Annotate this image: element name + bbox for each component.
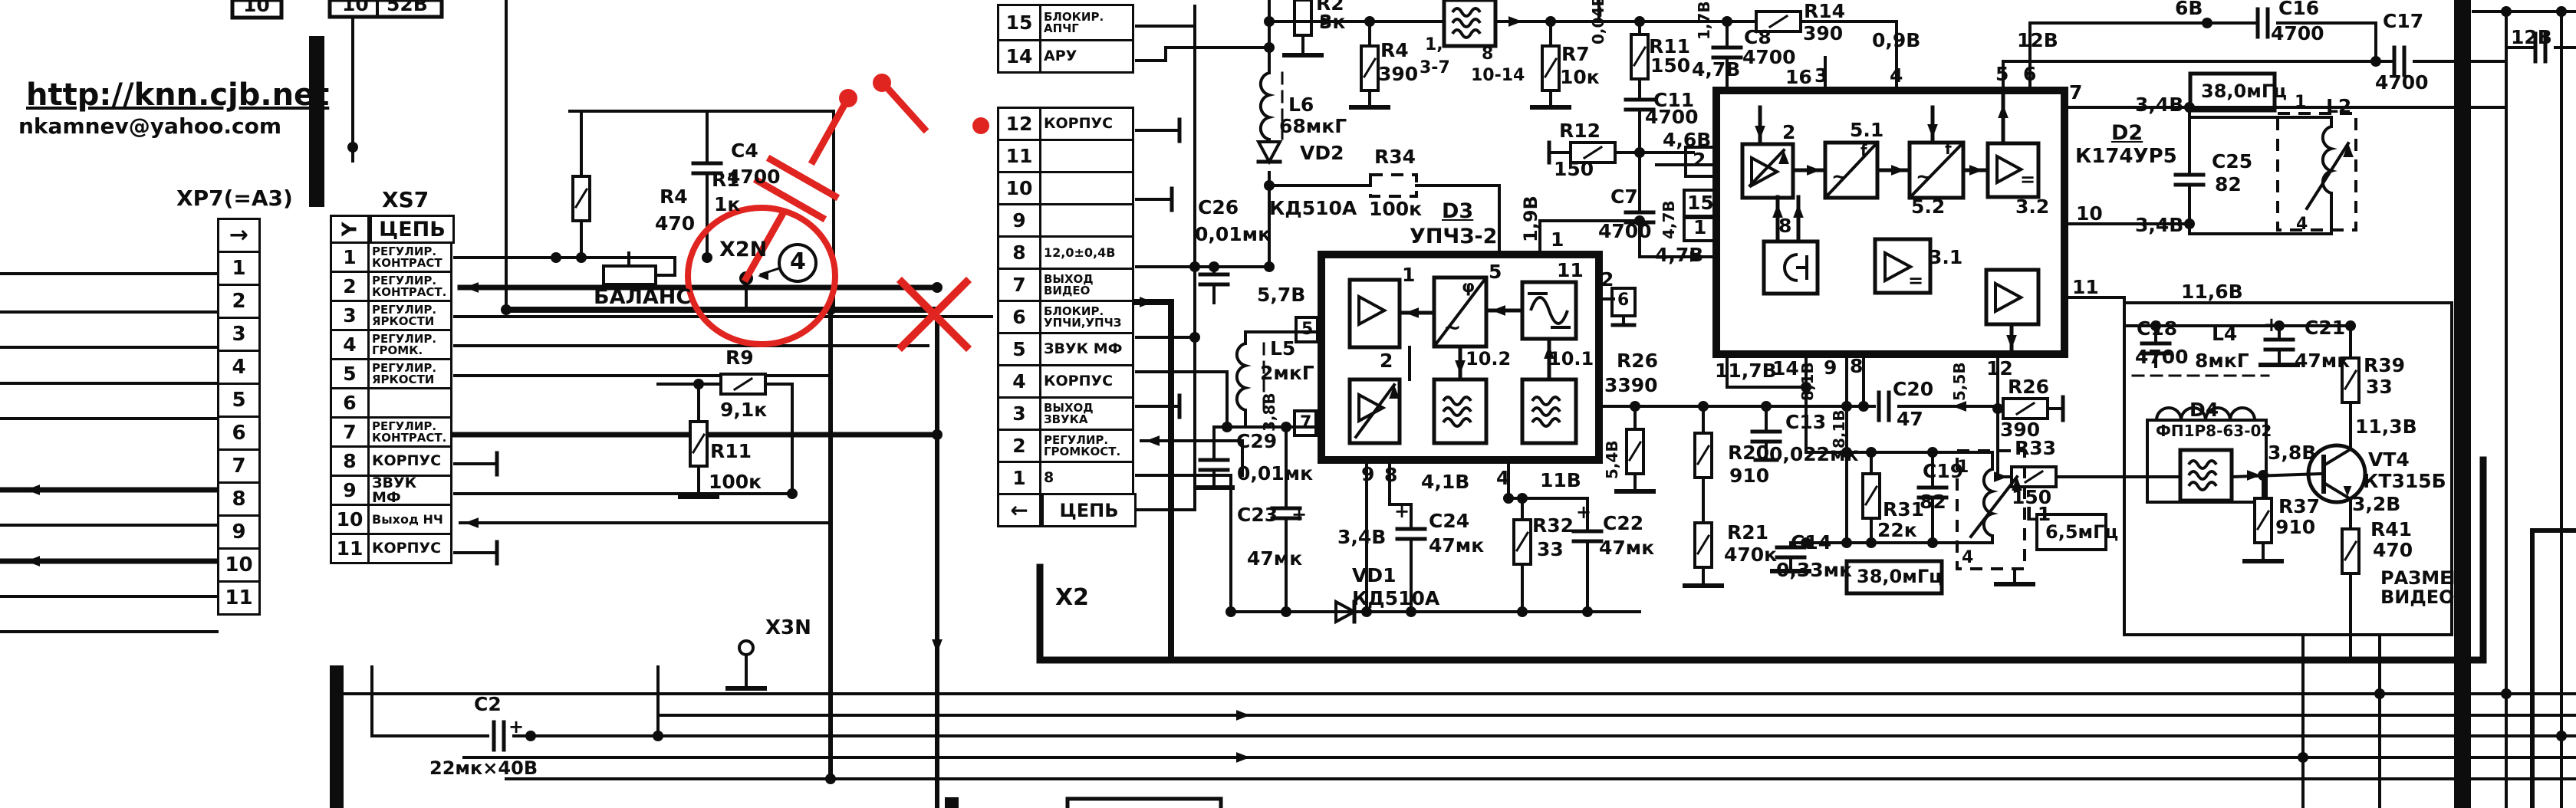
connector-xs7: YЦЕПЬ1РЕГУЛИР. КОНТРАСТ2РЕГУЛИР. КОНТРАС… <box>330 217 455 564</box>
label-components-d2-value-109: К174УР5 <box>2075 146 2177 167</box>
label-components-r4b-ref-24: R4 <box>1380 41 1409 61</box>
label-components-l4-value-93: 8мкГ <box>2195 351 2249 371</box>
label-components-r21-ref-54: R21 <box>1727 523 1768 543</box>
xs7-pin-8: 8 <box>330 445 370 477</box>
label-components-r33-value-72: 150 <box>2012 488 2051 507</box>
label-components-r9-value-17: 9,1к <box>720 400 767 420</box>
label-ics-d3-pins-p5-114: 5 <box>1301 321 1313 339</box>
xp7-pin-2: 2 <box>217 284 261 319</box>
x2-row-3: 3ВЫХОД ЗВУКА <box>997 399 1137 431</box>
label-ics-fss-pins_left_b-111: 3-7 <box>1420 60 1450 77</box>
x2-row-8: 812,0±0,4В <box>997 238 1137 270</box>
label-components-r33-ref-71: R33 <box>2015 438 2056 458</box>
label-meta-email-1: nkamnev@yahoo.com <box>18 115 281 137</box>
label-frequencies-f38_top-180: 38,0мГц <box>2201 82 2287 101</box>
label-components-r20-value-53: 910 <box>1729 466 1769 486</box>
label-ics-d2-pins-r10-137: 10 <box>2076 204 2103 224</box>
x2-label-8: 12,0±0,4В <box>1039 235 1134 270</box>
xp7-pin-4: 4 <box>217 350 261 385</box>
label-ics-d3-pins-p4-121: 4 <box>1496 468 1509 488</box>
label-components-r11a-value-19: 100к <box>709 472 762 492</box>
xs7-row-6: 6 <box>330 389 455 419</box>
label-ics-l2_pins-p1-151: 1 <box>2295 94 2306 112</box>
label-connectors-xp7-title-2: XP7(=A3) <box>176 187 293 209</box>
xp7-pin-10: 10 <box>217 547 261 583</box>
label-ics-d2-blocks-b51-144: 5.1 <box>1850 120 1883 140</box>
xs7-row-4: 4РЕГУЛИР. ГРОМК. <box>330 331 455 360</box>
label-components-r1-value-11: 1к <box>714 195 740 215</box>
label-ics-fss-pins_left_a-110: 1, <box>1425 37 1443 54</box>
x2-pin-8: 8 <box>997 235 1041 270</box>
x2-label-10 <box>1039 171 1134 205</box>
label-voltages-v11-168: 11В <box>1540 471 1581 491</box>
label-annotations-callout-8: 4 <box>790 250 806 274</box>
label-glyphs-eq-192: = <box>2020 170 2035 189</box>
label-components-c20-ref-64: C20 <box>1893 379 1933 399</box>
x2-pin-3: 3 <box>997 396 1041 431</box>
label-components-r41-ref-104: R41 <box>2370 520 2412 540</box>
x2-row-6: 6БЛОКИР. УПЧИ,УПЧЗ <box>997 302 1137 334</box>
xs7-row-2: 2РЕГУЛИР. КОНТРАСТ. <box>330 273 455 302</box>
label-annotations-x3n-7: X3N <box>765 618 811 639</box>
label-ics-d2-pins-t5-131: 5 <box>1995 64 2008 84</box>
label-frequencies-f38_bottom-181: 38,0мГц <box>1857 567 1943 586</box>
label-voltages-v17-155: 1,7В <box>1696 1 1712 40</box>
x2-label-1: 8 <box>1039 461 1134 495</box>
label-voltages-v47b-158: 4,7В <box>1661 200 1677 239</box>
label-components-r26a-ref-67: R26 <box>1617 351 1658 371</box>
xs7-row-1: 1РЕГУЛИР. КОНТРАСТ <box>330 244 455 273</box>
label-glyphs-tilde-191: ~ <box>1916 167 1933 188</box>
xs7-label-10: Выход НЧ <box>367 504 452 535</box>
label-glyphs-plus-196: + <box>1576 503 1591 522</box>
label-ics-d3-blocks-b101-127: 10.1 <box>1548 350 1594 369</box>
label-components-c2-ref-20: C2 <box>474 695 502 714</box>
label-voltages-v38b-166: 3,8В <box>2268 443 2316 463</box>
label-components-d3-value-107: УПЧЗ-2 <box>1410 226 1497 248</box>
label-components-r32-ref-48: R32 <box>1532 516 1574 536</box>
xs7-row-5: 5РЕГУЛИР. ЯРКОСТИ <box>330 360 455 389</box>
xs7-pin-3: 3 <box>330 300 370 331</box>
label-ics-d2-pins-b9-140: 9 <box>1824 358 1837 378</box>
label-components-r20-ref-52: R20 <box>1728 443 1769 463</box>
label-components-r32-value-49: 33 <box>1537 540 1564 560</box>
xs7-row-11: 11КОРПУС <box>330 535 455 564</box>
label-components-c23-ref-42: C23 <box>1237 505 1278 525</box>
label-components-d3-ref-106: D3 <box>1442 201 1473 222</box>
label-ics-d2-pins-l1-135: 1 <box>1693 218 1706 238</box>
label-glyphs-plus-197: + <box>2263 315 2280 336</box>
label-ics-d2-pins-t4-130: 4 <box>1890 66 1903 86</box>
label-components-c22-ref-50: C22 <box>1603 514 1643 534</box>
label-voltages-v117-176: 11,7В <box>1715 361 1777 381</box>
label-components-r4a-ref-14: R4 <box>660 187 688 207</box>
label-components-r26a-value-68: 3390 <box>1604 376 1658 396</box>
label-ics-d3-pins-p2-117: 2 <box>1601 270 1614 290</box>
x2-row-14: 14АРУ <box>997 41 1137 74</box>
xs7-label-3: РЕГУЛИР. ЯРКОСТИ <box>367 300 452 331</box>
xp7-row: 8 <box>217 484 261 517</box>
label-voltages-v54-172: 5,4В <box>1604 440 1620 479</box>
label-components-c16-ref-83: C16 <box>2278 0 2319 18</box>
label-components-c16-value-84: 4700 <box>2271 24 2324 44</box>
xp7-row: 4 <box>217 352 261 385</box>
label-components-r39-value-97: 33 <box>2366 377 2393 397</box>
label-voltages-v55-173: 5,5В <box>1952 362 1968 401</box>
xs7-pin-2: 2 <box>330 271 370 302</box>
label-ics-d2-pins-l2-133: 2 <box>1693 150 1706 170</box>
label-ics-d2-blocks-b8-147: 8 <box>1778 216 1791 236</box>
label-ics-d3-blocks-b11-124: 11 <box>1557 261 1584 281</box>
label-ics-d3-pins-p9-119: 9 <box>1361 465 1374 484</box>
label-components-c18-value-91: 4700 <box>2135 347 2189 367</box>
x2-row-1: 18 <box>997 463 1137 495</box>
label-ics-l1_pins-p1-149: 1 <box>1957 459 1969 477</box>
label-components-r12-value-29: 150 <box>1554 159 1594 179</box>
x2-label-9 <box>1039 203 1134 238</box>
label-glyphs-tilde-189: ~ <box>1831 167 1848 188</box>
label-ics-d3-pins-p7-115: 7 <box>1300 415 1311 432</box>
label-components-c20-value-65: 47 <box>1897 409 1923 429</box>
x2-footer-label: ЦЕПЬ <box>1041 493 1137 527</box>
x2-label-7: ВЫХОД ВИДЕО <box>1039 268 1134 302</box>
label-components-c17-value-86: 4700 <box>2375 73 2429 93</box>
x2-row-10: 10 <box>997 173 1137 205</box>
label-components-c14-value-59: 0,33мк <box>1776 560 1852 580</box>
x2-label-5: ЗВУК МФ <box>1039 332 1134 366</box>
xp7-header-arrow: → <box>217 218 261 253</box>
label-voltages-v34c-171: 3,4В <box>2135 215 2183 235</box>
xp7-row: 7 <box>217 451 261 484</box>
x2-pin-6: 6 <box>997 300 1041 334</box>
label-components-r37-ref-102: R37 <box>2278 497 2320 517</box>
x2-pin-1: 1 <box>997 461 1041 495</box>
label-ics-d3-pins-p8-120: 8 <box>1384 465 1397 485</box>
label-voltages-v47a-157: 4,7В <box>1692 60 1740 80</box>
label-components-c21-value-95: 47мк <box>2295 351 2350 371</box>
x2-row-4: 4КОРПУС <box>997 366 1137 399</box>
label-glyphs-eq-193: = <box>1908 271 1923 291</box>
label-components-r7-ref-26: R7 <box>1561 44 1590 64</box>
label-components-c29-value-41: 0,01мк <box>1237 464 1313 484</box>
label-ics-d3-pins-p1-116: 1 <box>1551 230 1564 250</box>
label-connectors-fragments-box1_pin-183: 10 <box>243 0 270 15</box>
x2-label-3: ВЫХОД ЗВУКА <box>1039 396 1134 431</box>
label-voltages-v38a-165: 3,8В <box>1262 393 1278 432</box>
x2-pin-11: 11 <box>997 139 1041 173</box>
label-glyphs-plus-198: + <box>508 718 524 737</box>
label-connectors-fragments-box2_pin-184: 10 <box>342 0 369 15</box>
label-components-c24-value-47: 47мк <box>1429 536 1484 556</box>
xp7-row: 5 <box>217 385 261 418</box>
label-annotations-razmer-9: РАЗМЕР ВИДЕО <box>2380 569 2466 607</box>
label-components-c11-value-78: 4700 <box>1645 107 1699 127</box>
x2-row-11: 11 <box>997 141 1137 173</box>
xs7-row-9: 9ЗВУК МФ <box>330 477 455 506</box>
label-components-r26b-ref-69: R26 <box>2008 377 2049 397</box>
label-voltages-v116-177: 11,6В <box>2181 282 2243 302</box>
xs7-pin-5: 5 <box>330 358 370 389</box>
label-components-r31-value-61: 22к <box>1877 521 1917 540</box>
xs7-fork-symbol: Y <box>340 222 360 237</box>
label-components-c18-ref-90: C18 <box>2137 319 2177 339</box>
x2-row-9: 9 <box>997 205 1137 238</box>
label-ics-d2-pins-r11-138: 11 <box>2072 278 2099 297</box>
label-ics-d3-blocks-b5-123: 5 <box>1489 262 1502 282</box>
label-ics-d2-pins-t3-129: 3 <box>1814 66 1828 86</box>
x2-row-12: 12КОРПУС <box>997 109 1137 141</box>
label-components-l2-ref-89: L2 <box>2326 97 2351 117</box>
label-components-r9-ref-16: R9 <box>725 348 754 368</box>
label-voltages-v81a-174: 8,1В <box>1800 362 1816 401</box>
xp7-pin-3: 3 <box>217 317 261 352</box>
xp7-row: 3 <box>217 319 261 352</box>
xp7-pin-7: 7 <box>217 448 261 484</box>
x2-gap <box>997 74 1137 109</box>
label-components-c23-value-43: 47мк <box>1247 549 1302 569</box>
label-components-r11a-ref-18: R11 <box>710 442 752 461</box>
label-components-d4-value-99: ФП1Р8-63-02 <box>2156 423 2272 439</box>
label-ics-d2-blocks-b52-145: 5.2 <box>1911 197 1945 217</box>
xs7-pin-1: 1 <box>330 241 370 273</box>
label-components-r12-ref-28: R12 <box>1559 121 1601 141</box>
label-components-d4-ref-98: D4 <box>2189 400 2219 420</box>
label-components-r39-ref-96: R39 <box>2364 356 2405 376</box>
x2-row-2: 2РЕГУЛИР. ГРОМКОСТ. <box>997 431 1137 463</box>
x2-pin-14: 14 <box>997 39 1041 74</box>
label-annotations-balance-5: БАЛАНС <box>594 287 691 308</box>
xs7-pin-6: 6 <box>330 387 370 419</box>
label-components-d2-ref-108: D2 <box>2111 123 2143 144</box>
label-ics-d2-pins-r7-136: 7 <box>2069 83 2082 103</box>
label-meta-url-0: http://knn.cjb.net <box>26 80 329 112</box>
xs7-header-label: ЦЕПЬ <box>370 215 455 244</box>
label-components-c24-ref-46: C24 <box>1429 511 1469 531</box>
x2-pin-2: 2 <box>997 429 1041 463</box>
label-components-vt4-ref-100: VT4 <box>2368 450 2410 470</box>
label-ics-d2-pins-l15-134: 15 <box>1687 193 1714 213</box>
label-voltages-v41-167: 4,1В <box>1421 472 1469 492</box>
label-components-r4a-value-15: 470 <box>655 214 695 234</box>
label-ics-d2-blocks-b2-143: 2 <box>1782 123 1795 143</box>
x2-pin-10: 10 <box>997 171 1041 205</box>
label-voltages-v12a-161: 12В <box>2017 31 2058 51</box>
label-ics-d3-blocks-b102-126: 10.2 <box>1466 350 1511 369</box>
label-components-r34-ref-30: R34 <box>1374 147 1416 167</box>
label-components-r31-ref-60: R31 <box>1883 500 1924 520</box>
label-voltages-v12b-162: 12В <box>2511 28 2552 48</box>
label-glyphs-plus-194: + <box>1291 505 1307 524</box>
label-components-r41-value-105: 470 <box>2373 540 2413 560</box>
xs7-label-4: РЕГУЛИР. ГРОМК. <box>367 329 452 360</box>
xs7-label-8: КОРПУС <box>367 445 452 477</box>
label-components-c8-ref-81: C8 <box>1744 28 1772 48</box>
label-components-r37-value-103: 910 <box>2275 517 2315 537</box>
label-voltages-v32-179: 3,2В <box>2352 494 2400 514</box>
xs7-label-2: РЕГУЛИР. КОНТРАСТ. <box>367 271 452 302</box>
label-connectors-x2-title-4: X2 <box>1055 586 1089 609</box>
label-glyphs-tilde-187: ~ <box>1443 316 1461 338</box>
label-ics-d3-blocks-b1-122: 1 <box>1402 265 1415 285</box>
label-components-r14-ref-79: R14 <box>1804 2 1845 21</box>
label-components-c13-ref-56: C13 <box>1785 412 1826 432</box>
label-ics-d2-blocks-b31-148: 3.1 <box>1929 248 1962 268</box>
xs7-label-7: РЕГУЛИР. КОНТРАСТ. <box>367 416 452 448</box>
connector-xp7: →1234567891011 <box>217 220 261 616</box>
label-components-c25-ref-87: C25 <box>2212 152 2252 172</box>
label-ics-d2-pins-t16-128: 16 <box>1785 67 1812 87</box>
label-components-c4-value-13: 4700 <box>727 167 781 187</box>
xp7-pin-11: 11 <box>217 580 261 616</box>
label-voltages-v46-156: 4,6В <box>1663 130 1711 150</box>
x2-pin-4: 4 <box>997 364 1041 399</box>
label-components-c7-ref-73: C7 <box>1610 187 1638 207</box>
x2-footer-arrow: ← <box>997 493 1041 527</box>
label-components-c4-ref-12: C4 <box>731 141 758 161</box>
label-glyphs-f-190: f <box>1945 141 1952 157</box>
label-connectors-xs7-title-3: XS7 <box>382 189 429 211</box>
xp7-row: 9 <box>217 517 261 550</box>
label-components-vd2-value-35: КД510А <box>1269 199 1357 218</box>
label-components-r4b-value-25: 390 <box>1378 64 1418 84</box>
label-voltages-v19-163: 1,9В <box>1522 195 1541 242</box>
label-components-c29-ref-40: C29 <box>1236 432 1277 452</box>
xs7-label-9: ЗВУК МФ <box>367 475 452 506</box>
label-components-r21-value-55: 470к <box>1724 545 1777 565</box>
xp7-row: 11 <box>217 583 261 616</box>
x2-pin-7: 7 <box>997 268 1041 302</box>
label-ics-fss-pins_right_a-112: 8 <box>1482 46 1493 64</box>
x2-pin-9: 9 <box>997 203 1041 238</box>
xs7-pin-11: 11 <box>330 533 370 564</box>
label-voltages-v34b-170: 3,4В <box>2135 95 2183 115</box>
label-ics-d2-pins-b12-142: 12 <box>1986 359 2013 379</box>
label-components-c2-value-21: 22мк×40В <box>429 759 538 778</box>
label-glyphs-plus-195: + <box>1394 502 1410 521</box>
label-voltages-v113-178: 11,3В <box>2355 417 2417 437</box>
label-components-c26-ref-36: C26 <box>1198 198 1239 218</box>
label-components-l4-ref-92: L4 <box>2212 324 2237 344</box>
xs7-pin-7: 7 <box>330 416 370 448</box>
label-ics-d2-blocks-b32-146: 3.2 <box>2015 197 2049 217</box>
label-voltages-v81b-175: 8,1В <box>1831 409 1847 448</box>
xs7-label-1: РЕГУЛИР. КОНТРАСТ <box>367 241 452 273</box>
xs7-label-5: РЕГУЛИР. ЯРКОСТИ <box>367 358 452 389</box>
xs7-pin-4: 4 <box>330 329 370 360</box>
xp7-row: 6 <box>217 418 261 451</box>
label-voltages-v34a-169: 3,4В <box>1337 527 1386 547</box>
x2-label-14: АРУ <box>1039 39 1134 74</box>
label-ics-d2-pins-t6-132: 6 <box>2023 64 2036 84</box>
label-components-c7-value-74: 4700 <box>1598 222 1652 241</box>
x2-label-11 <box>1039 139 1134 173</box>
label-voltages-v6-160: 6В <box>2175 0 2203 18</box>
label-components-c22-value-51: 47мк <box>1599 538 1654 558</box>
label-components-c14-ref-58: C14 <box>1791 533 1831 553</box>
xs7-header-symbol: Y <box>330 215 370 244</box>
x2-label-15: БЛОКИР. АПЧГ <box>1039 4 1134 41</box>
xs7-pin-10: 10 <box>330 504 370 535</box>
label-components-l6-ref-32: L6 <box>1288 95 1314 115</box>
label-components-vd1-ref-44: VD1 <box>1352 566 1397 586</box>
xp7-pin-5: 5 <box>217 383 261 418</box>
label-components-c26-value-37: 0,01мк <box>1195 225 1271 245</box>
x2-row-15: 15БЛОКИР. АПЧГ <box>997 6 1137 41</box>
label-voltages-v004-153: 0,04В <box>1591 0 1607 44</box>
label-components-c25-value-88: 82 <box>2215 175 2242 195</box>
xs7-row-8: 8КОРПУС <box>330 448 455 477</box>
xp7-row: 10 <box>217 550 261 583</box>
label-connectors-fragments-box2_value-185: 52В <box>387 0 428 15</box>
label-glyphs-phi-186: φ <box>1462 279 1475 297</box>
xp7-pin-8: 8 <box>217 481 261 517</box>
x2-pin-15: 15 <box>997 4 1041 41</box>
connector-x2: 15БЛОКИР. АПЧГ14АРУ12КОРПУС11109812,0±0,… <box>997 6 1137 527</box>
x2-pin-12: 12 <box>997 107 1041 141</box>
label-frequencies-f65-182: 6,5мГц <box>2045 523 2118 542</box>
label-ics-d2-pins-b8-141: 8 <box>1850 356 1863 376</box>
xp7-pin-1: 1 <box>217 251 261 286</box>
x2-label-12: КОРПУС <box>1039 107 1134 141</box>
xp7-row: 2 <box>217 286 261 319</box>
xp7-row: 1 <box>217 253 261 286</box>
x2-row-7: 7ВЫХОД ВИДЕО <box>997 270 1137 302</box>
label-components-l5-value-39: 2мкГ <box>1260 363 1314 383</box>
xs7-row-7: 7РЕГУЛИР. КОНТРАСТ. <box>330 419 455 448</box>
label-ics-fss-pins_right_b-113: 10-14 <box>1471 67 1525 85</box>
label-glyphs-f-188: f <box>1860 143 1867 159</box>
label-components-r14-value-80: 390 <box>1803 24 1843 44</box>
label-ics-l1_pins-p4-150: 4 <box>1962 550 1973 567</box>
label-components-r11b-value-76: 150 <box>1650 56 1690 76</box>
xs7-row-3: 3РЕГУЛИР. ЯРКОСТИ <box>330 302 455 331</box>
x2-row-5: 5ЗВУК МФ <box>997 334 1137 366</box>
label-components-l6-value-33: 68мкГ <box>1279 117 1347 136</box>
label-components-c8-value-82: 4700 <box>1742 48 1796 67</box>
label-components-vd1-value-45: КД510А <box>1352 589 1439 609</box>
xs7-label-11: КОРПУС <box>367 533 452 564</box>
label-components-c19-value-63: 82 <box>1920 492 1946 512</box>
x2-label-6: БЛОКИР. УПЧИ,УПЧЗ <box>1039 300 1134 334</box>
label-voltages-v57-164: 5,7В <box>1257 285 1305 305</box>
label-components-l5-ref-38: L5 <box>1270 339 1295 359</box>
label-ics-d3-pins-tag6-118: 6 <box>1617 292 1629 310</box>
label-components-c21-ref-94: C21 <box>2305 318 2345 338</box>
xp7-pin-6: 6 <box>217 415 261 451</box>
x2-label-2: РЕГУЛИР. ГРОМКОСТ. <box>1039 429 1134 463</box>
x2-footer: ←ЦЕПЬ <box>997 495 1137 527</box>
label-components-c17-ref-85: C17 <box>2383 11 2423 31</box>
xs7-label-6 <box>367 387 452 419</box>
x2-label-4: КОРПУС <box>1039 364 1134 399</box>
xp7-pin-9: 9 <box>217 514 261 550</box>
label-components-r7-value-27: 10к <box>1560 67 1600 87</box>
schematic-page: http://knn.cjb.netnkamnev@yahoo.comXP7(=… <box>0 0 2576 808</box>
xs7-row-10: 10Выход НЧ <box>330 506 455 535</box>
label-components-vd2-ref-34: VD2 <box>1300 143 1344 163</box>
label-voltages-v09-154: 0,9В <box>1872 31 1920 51</box>
label-components-r34-value-31: 100к <box>1369 199 1422 219</box>
label-ics-l2_pins-p4-152: 4 <box>2296 216 2308 234</box>
label-components-r2-value-23: 3к <box>1319 12 1345 32</box>
label-ics-d3-blocks-b2-125: 2 <box>1380 351 1393 371</box>
label-components-vt4-value-101: КТ315Б <box>2363 471 2446 491</box>
label-voltages-v47c-159: 4,7В <box>1655 245 1703 265</box>
label-annotations-x2n-6: X2N <box>719 239 767 261</box>
x2-pin-5: 5 <box>997 332 1041 366</box>
xs7-pin-9: 9 <box>330 475 370 506</box>
